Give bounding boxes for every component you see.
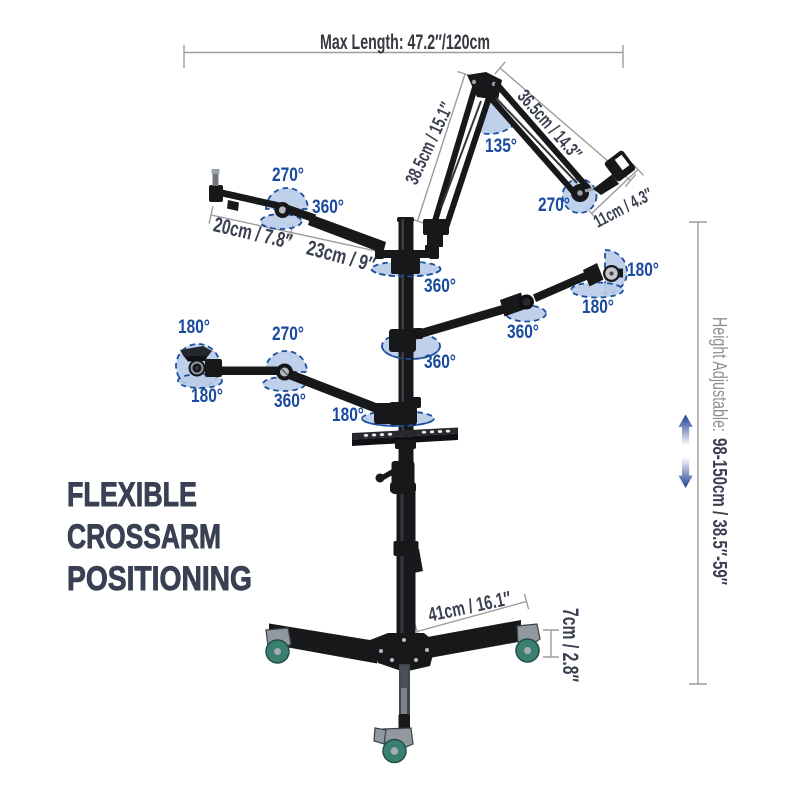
- svg-text:270°: 270°: [272, 324, 304, 345]
- svg-text:FLEXIBLE: FLEXIBLE: [67, 476, 197, 514]
- svg-text:Height Adjustable:: Height Adjustable:: [708, 317, 730, 432]
- svg-text:180°: 180°: [582, 297, 614, 318]
- svg-text:CROSSARM: CROSSARM: [67, 518, 221, 556]
- svg-text:98-150cm / 38.5″-59″: 98-150cm / 38.5″-59″: [708, 438, 730, 585]
- svg-text:Max Length: 47.2″/120cm: Max Length: 47.2″/120cm: [320, 31, 490, 54]
- svg-text:360°: 360°: [274, 391, 306, 412]
- svg-text:180°: 180°: [627, 260, 659, 281]
- svg-text:270°: 270°: [538, 195, 570, 216]
- svg-text:180°: 180°: [191, 386, 223, 407]
- svg-text:360°: 360°: [424, 352, 456, 373]
- svg-text:7cm / 2.8″: 7cm / 2.8″: [558, 608, 583, 682]
- svg-text:360°: 360°: [424, 276, 456, 297]
- svg-text:360°: 360°: [312, 197, 344, 218]
- svg-text:360°: 360°: [507, 322, 539, 343]
- svg-text:270°: 270°: [272, 165, 304, 186]
- svg-text:180°: 180°: [178, 317, 210, 338]
- svg-text:180°: 180°: [332, 405, 364, 426]
- svg-text:135°: 135°: [485, 136, 517, 157]
- svg-text:POSITIONING: POSITIONING: [67, 560, 252, 598]
